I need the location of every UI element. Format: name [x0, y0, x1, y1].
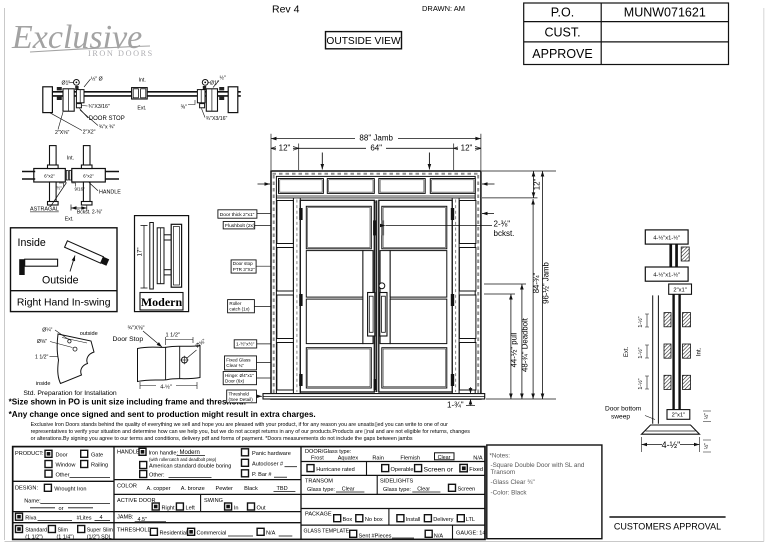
svg-text:PRODUCT:: PRODUCT:	[15, 451, 44, 457]
svg-text:Install: Install	[406, 517, 421, 523]
svg-text:1-½": 1-½"	[637, 316, 644, 327]
svg-text:SWING: SWING	[204, 498, 223, 504]
svg-text:(1 1/4"): (1 1/4")	[57, 534, 75, 540]
svg-text:4: 4	[100, 515, 103, 521]
svg-text:Ø¼": Ø¼"	[42, 327, 52, 333]
svg-text:GAUGE: 14: GAUGE: 14	[456, 531, 486, 537]
svg-text:Name:: Name:	[24, 498, 41, 504]
svg-text:96-½" Jamb: 96-½" Jamb	[542, 261, 551, 303]
svg-text:TRANSOM: TRANSOM	[305, 479, 333, 485]
svg-text:*Notes:: *Notes:	[489, 453, 510, 460]
svg-text:(See Detail): (See Detail)	[229, 397, 254, 402]
svg-text:4-½": 4-½"	[160, 384, 172, 391]
svg-text:ASTRAGAL: ASTRAGAL	[30, 207, 59, 213]
svg-text:JAMB:: JAMB:	[117, 515, 134, 521]
svg-text:Autocloser #: Autocloser #	[252, 462, 284, 468]
svg-text:Fixed: Fixed	[469, 467, 483, 473]
svg-text:1-½"x½": 1-½"x½"	[236, 341, 255, 348]
svg-text:American standard double borin: American standard double boring	[149, 464, 231, 470]
svg-text:Glass type:: Glass type:	[383, 487, 411, 493]
svg-text:A. bronze: A. bronze	[181, 486, 205, 492]
svg-text:6"x2": 6"x2"	[83, 174, 94, 179]
svg-text:catch (1x): catch (1x)	[229, 307, 250, 312]
svg-text:Transom: Transom	[491, 469, 516, 476]
svg-text:Door (6x): Door (6x)	[225, 379, 245, 384]
svg-text:Door Stop: Door Stop	[113, 336, 144, 343]
svg-text:⅜": ⅜"	[181, 105, 187, 111]
svg-text:Window: Window	[56, 463, 77, 469]
svg-text:½": ½"	[220, 75, 226, 82]
svg-text:or: or	[59, 506, 64, 512]
svg-text:Aquatex: Aquatex	[338, 456, 359, 462]
svg-text:N/A: N/A	[266, 531, 276, 537]
svg-text:1-¾": 1-¾"	[447, 401, 464, 410]
svg-text:Door: Door	[56, 453, 68, 459]
svg-text:In: In	[234, 505, 239, 511]
svg-text:9/16": 9/16"	[75, 187, 86, 192]
svg-text:Left: Left	[186, 505, 196, 511]
svg-text:Int.: Int.	[697, 348, 703, 357]
svg-text:Ext.: Ext.	[137, 106, 146, 112]
svg-text:Commercial: Commercial	[197, 531, 227, 537]
svg-text:1 1/2": 1 1/2"	[166, 333, 180, 339]
svg-text:Hinge: Ø4"x1": Hinge: Ø4"x1"	[225, 373, 254, 378]
svg-text:12": 12"	[461, 143, 473, 152]
svg-text:Door thick 2"x1": Door thick 2"x1"	[220, 212, 255, 218]
svg-text:DOOR STOP: DOOR STOP	[89, 116, 125, 122]
svg-text:44-½" pull: 44-½" pull	[510, 332, 519, 367]
svg-text:6"x2": 6"x2"	[44, 174, 55, 179]
svg-text:Bckst. 2-⅜": Bckst. 2-⅜"	[77, 210, 103, 216]
svg-text:½" Ø: ½" Ø	[91, 76, 103, 83]
svg-text:Door stop: Door stop	[233, 261, 253, 266]
svg-text:84-¾": 84-¾"	[532, 273, 541, 294]
svg-text:(1 1/2"): (1 1/2")	[25, 534, 43, 540]
svg-text:Fixed Glass: Fixed Glass	[226, 357, 251, 362]
svg-text:Operable: Operable	[391, 467, 414, 473]
svg-text:Sent #Pieces: Sent #Pieces	[359, 534, 392, 540]
svg-text:Threshold: Threshold	[229, 391, 250, 396]
svg-text:COLOR: COLOR	[117, 484, 137, 490]
svg-text:Wrought Iron: Wrought Iron	[54, 487, 86, 493]
svg-text:No box: No box	[365, 517, 383, 523]
svg-text:Riva: Riva	[25, 515, 37, 521]
svg-text:2"X⅝": 2"X⅝"	[55, 130, 70, 136]
svg-text:Right Hand In-swing: Right Hand In-swing	[17, 298, 111, 309]
svg-text:*Size shown in PO is unit size: *Size shown in PO is unit size including…	[9, 398, 246, 407]
svg-text:Roller: Roller	[229, 301, 241, 306]
svg-text:Frost: Frost	[311, 456, 324, 462]
svg-text:inside: inside	[36, 381, 51, 387]
svg-text:Modern: Modern	[180, 450, 200, 456]
svg-text:Flushbolt (2x): Flushbolt (2x)	[225, 223, 255, 229]
svg-text:48-¾" Deadbolt: 48-¾" Deadbolt	[521, 317, 530, 372]
svg-text:IRON DOORS: IRON DOORS	[88, 49, 154, 58]
svg-text:bckst.: bckst.	[494, 229, 515, 238]
svg-text:Outside: Outside	[42, 275, 79, 287]
svg-text:Int.: Int.	[67, 156, 74, 162]
svg-text:MUNW071621: MUNW071621	[624, 6, 706, 20]
svg-text:Screen: Screen	[458, 487, 476, 493]
svg-text:HANDLE: HANDLE	[99, 189, 121, 195]
svg-text:Railing: Railing	[91, 463, 108, 469]
svg-text:2"x1": 2"x1"	[672, 413, 685, 419]
svg-text:Standard: Standard	[25, 527, 47, 533]
svg-text:PACKAGE: PACKAGE	[305, 512, 332, 518]
svg-text:SIDELIGHTS: SIDELIGHTS	[380, 479, 414, 485]
svg-text:outside: outside	[80, 331, 98, 337]
svg-text:64": 64"	[370, 143, 382, 152]
svg-text:Screen or: Screen or	[424, 466, 454, 473]
svg-text:Inside: Inside	[18, 237, 46, 249]
svg-text:PTR 3"X2": PTR 3"X2"	[233, 267, 255, 272]
svg-text:Ext.: Ext.	[65, 216, 74, 222]
svg-text:88" Jamb: 88" Jamb	[359, 134, 393, 143]
svg-text:or alterations.By signing you: or alterations.By signing you agree to o…	[31, 436, 413, 442]
svg-text:Right: Right	[162, 505, 176, 511]
svg-text:Out: Out	[257, 505, 266, 511]
svg-text:DRAWN: AM: DRAWN: AM	[422, 4, 465, 13]
svg-text:Other:: Other:	[149, 473, 165, 479]
svg-text:Black: Black	[244, 486, 258, 492]
svg-text:#Lites: #Lites	[77, 515, 92, 521]
svg-text:CUSTOMERS APPROVAL: CUSTOMERS APPROVAL	[614, 522, 721, 532]
svg-text:12": 12"	[533, 179, 542, 191]
svg-text:GLASS TEMPLATE: GLASS TEMPLATE	[304, 529, 350, 535]
svg-text:OUTSIDE VIEW: OUTSIDE VIEW	[326, 36, 401, 47]
svg-text:4-½": 4-½"	[662, 440, 681, 450]
svg-text:Residential: Residential	[160, 531, 188, 537]
svg-text:¾"X⅝": ¾"X⅝"	[128, 326, 145, 332]
svg-text:Panic hardware: Panic hardware	[252, 451, 291, 457]
svg-text:4-½"x1-½": 4-½"x1-½"	[653, 271, 680, 278]
svg-text:¾"X3/16": ¾"X3/16"	[206, 116, 228, 122]
svg-text:4-½"x1-½": 4-½"x1-½"	[653, 234, 680, 241]
svg-text:A. copper: A. copper	[147, 486, 171, 492]
svg-text:Int.: Int.	[139, 77, 146, 83]
svg-text:Door bottom: Door bottom	[605, 406, 642, 413]
svg-text:Std. Preparation for Installat: Std. Preparation for Installation	[23, 390, 117, 397]
svg-text:Pewter: Pewter	[216, 486, 234, 492]
svg-text:CUST.: CUST.	[544, 26, 580, 40]
svg-text:Ø1": Ø1"	[62, 81, 71, 87]
svg-text:Super Slim: Super Slim	[87, 527, 114, 533]
svg-text:12": 12"	[279, 143, 291, 152]
svg-text:Delivery: Delivery	[433, 517, 453, 523]
svg-text:-Color: Black: -Color: Black	[491, 490, 528, 497]
svg-text:APPROVE: APPROVE	[532, 47, 592, 61]
svg-text:*Any change once signed and se: *Any change once signed and sent to prod…	[9, 410, 316, 419]
svg-text:representatives to verify your: representatives to verify your situation…	[31, 429, 471, 435]
svg-text:Clear: Clear	[438, 455, 451, 461]
svg-text:Slim: Slim	[58, 527, 69, 533]
svg-text:Hurricane rated: Hurricane rated	[316, 467, 355, 473]
svg-text:Iron handle:: Iron handle:	[149, 451, 179, 457]
svg-text:1-½": 1-½"	[637, 347, 644, 358]
svg-text:Gate: Gate	[91, 453, 103, 459]
svg-text:LTL: LTL	[466, 517, 475, 523]
svg-text:-Glass Clear ¾": -Glass Clear ¾"	[491, 479, 535, 486]
svg-text:N/A: N/A	[434, 534, 444, 540]
svg-text:½": ½"	[703, 413, 710, 419]
svg-text:1-½": 1-½"	[637, 378, 644, 389]
svg-text:Other: Other	[56, 472, 70, 478]
svg-text:(1/2") SDL: (1/2") SDL	[87, 534, 112, 540]
svg-text:¾"x ¾": ¾"x ¾"	[99, 124, 116, 130]
svg-text:Rain: Rain	[372, 456, 384, 462]
svg-text:Ext.: Ext.	[624, 347, 630, 358]
svg-text:Rev 4: Rev 4	[272, 4, 300, 16]
svg-text:-Square Double Door with SL an: -Square Double Door with SL and	[491, 462, 585, 469]
svg-text:¾"X3/16": ¾"X3/16"	[88, 104, 110, 110]
svg-text:Modern: Modern	[141, 295, 183, 309]
svg-text:sweep: sweep	[611, 414, 630, 421]
svg-text:HANDLE: HANDLE	[117, 450, 140, 456]
svg-text:Clear ¾": Clear ¾"	[226, 363, 244, 368]
svg-text:(with rollercatch and deadbolt: (with rollercatch and deadbolt prep)	[149, 457, 217, 462]
svg-text:P.O.: P.O.	[551, 6, 574, 20]
svg-text:THRESHOLD: THRESHOLD	[117, 528, 152, 534]
svg-text:Flemish: Flemish	[400, 456, 420, 462]
svg-text:Ø⅝": Ø⅝"	[37, 339, 47, 345]
svg-text:½": ½"	[703, 443, 710, 449]
svg-text:Box: Box	[343, 517, 353, 523]
svg-text:Exclusive Iron Doors stands be: Exclusive Iron Doors stands behind the q…	[31, 422, 449, 428]
svg-text:2-⅜": 2-⅜"	[494, 220, 511, 229]
svg-text:2"x1": 2"x1"	[673, 287, 686, 293]
svg-text:17": 17"	[137, 247, 144, 256]
svg-text:DOOR/Glass type:: DOOR/Glass type:	[305, 449, 352, 455]
svg-text:P. Bar #: P. Bar #	[252, 472, 272, 478]
svg-text:Glass type:: Glass type:	[307, 487, 335, 493]
svg-text:N/A: N/A	[473, 456, 483, 462]
svg-text:DESIGN:: DESIGN:	[15, 485, 38, 491]
svg-text:2"X2": 2"X2"	[83, 130, 96, 136]
svg-text:1 1/2": 1 1/2"	[35, 354, 49, 360]
svg-text:ACTIVE DOOR: ACTIVE DOOR	[117, 498, 156, 504]
